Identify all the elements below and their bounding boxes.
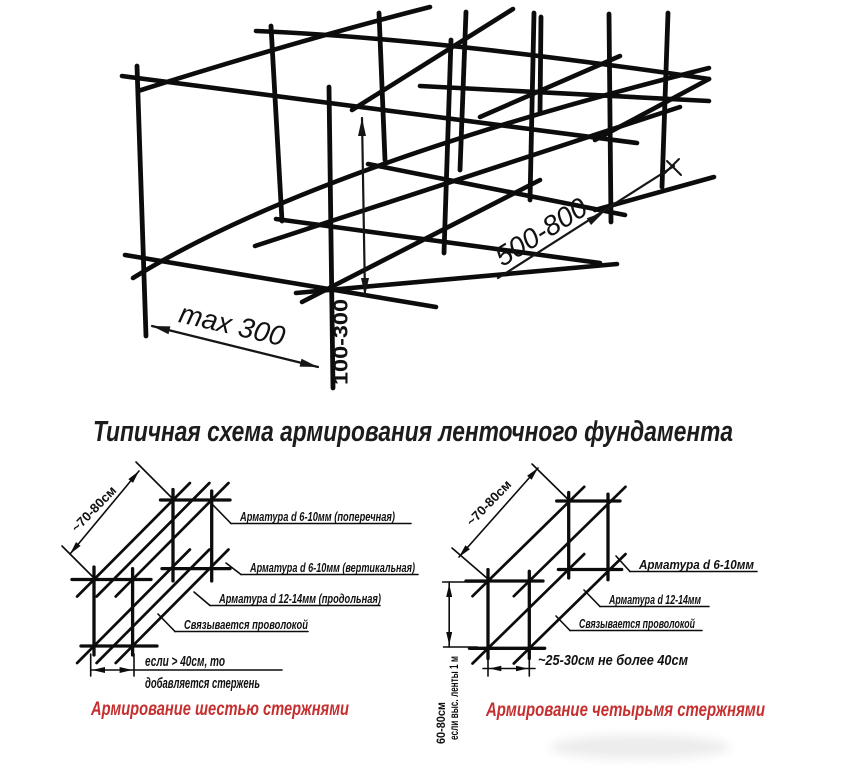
svg-text:max 300: max 300 [176,298,288,352]
svg-text:Арматура d 6-10мм (вертикальна: Арматура d 6-10мм (вертикальная) [249,561,415,575]
svg-text:~25-30см не более 40см: ~25-30см не более 40см [538,652,688,669]
svg-text:Связывается проволокой: Связывается проволокой [184,618,308,632]
svg-text:100-300: 100-300 [331,299,353,385]
svg-text:Типичная схема армирования лен: Типичная схема армирования ленточного фу… [93,416,733,448]
svg-text:Армирование шестью стержнями: Армирование шестью стержнями [90,699,349,720]
svg-text:Арматура d 6-10мм (поперечная): Арматура d 6-10мм (поперечная) [239,510,395,524]
svg-text:Армирование четырьмя стержнями: Армирование четырьмя стержнями [485,700,765,721]
svg-text:если > 40см, то: если > 40см, то [145,653,225,670]
svg-text:добавляется стержень: добавляется стержень [145,675,260,692]
svg-text:~70-80см: ~70-80см [68,483,119,535]
svg-text:Связывается проволокой: Связывается проволокой [579,616,695,631]
svg-text:Арматура d 12-14мм: Арматура d 12-14мм [608,592,701,607]
svg-text:если выс. ленты 1 м: если выс. ленты 1 м [447,656,461,740]
svg-text:Арматура d 6-10мм: Арматура d 6-10мм [638,557,754,572]
svg-text:Арматура d 12-14мм (продольная: Арматура d 12-14мм (продольная) [218,592,381,606]
svg-text:60-80см: 60-80см [434,702,448,744]
